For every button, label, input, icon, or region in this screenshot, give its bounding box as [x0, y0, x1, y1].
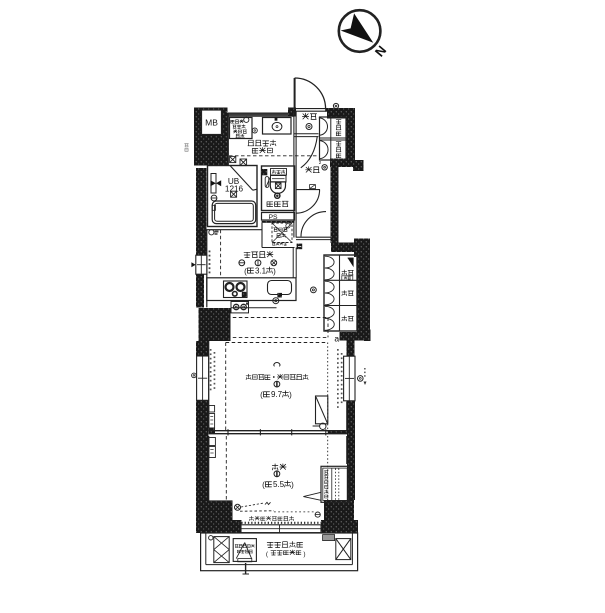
svg-text:): ) — [273, 267, 276, 276]
svg-text:): ) — [291, 481, 294, 490]
svg-text:(: ( — [262, 481, 265, 490]
svg-text:MB: MB — [205, 118, 218, 128]
svg-text:): ) — [289, 391, 292, 400]
svg-text:3.1: 3.1 — [255, 266, 267, 275]
svg-text:): ) — [303, 551, 305, 558]
svg-text:1216: 1216 — [225, 185, 244, 194]
svg-text:9.7: 9.7 — [271, 390, 283, 399]
svg-text:(: ( — [260, 391, 263, 400]
svg-text:(: ( — [244, 267, 247, 276]
svg-text:a: a — [334, 334, 339, 344]
svg-text:5.5: 5.5 — [273, 480, 285, 489]
